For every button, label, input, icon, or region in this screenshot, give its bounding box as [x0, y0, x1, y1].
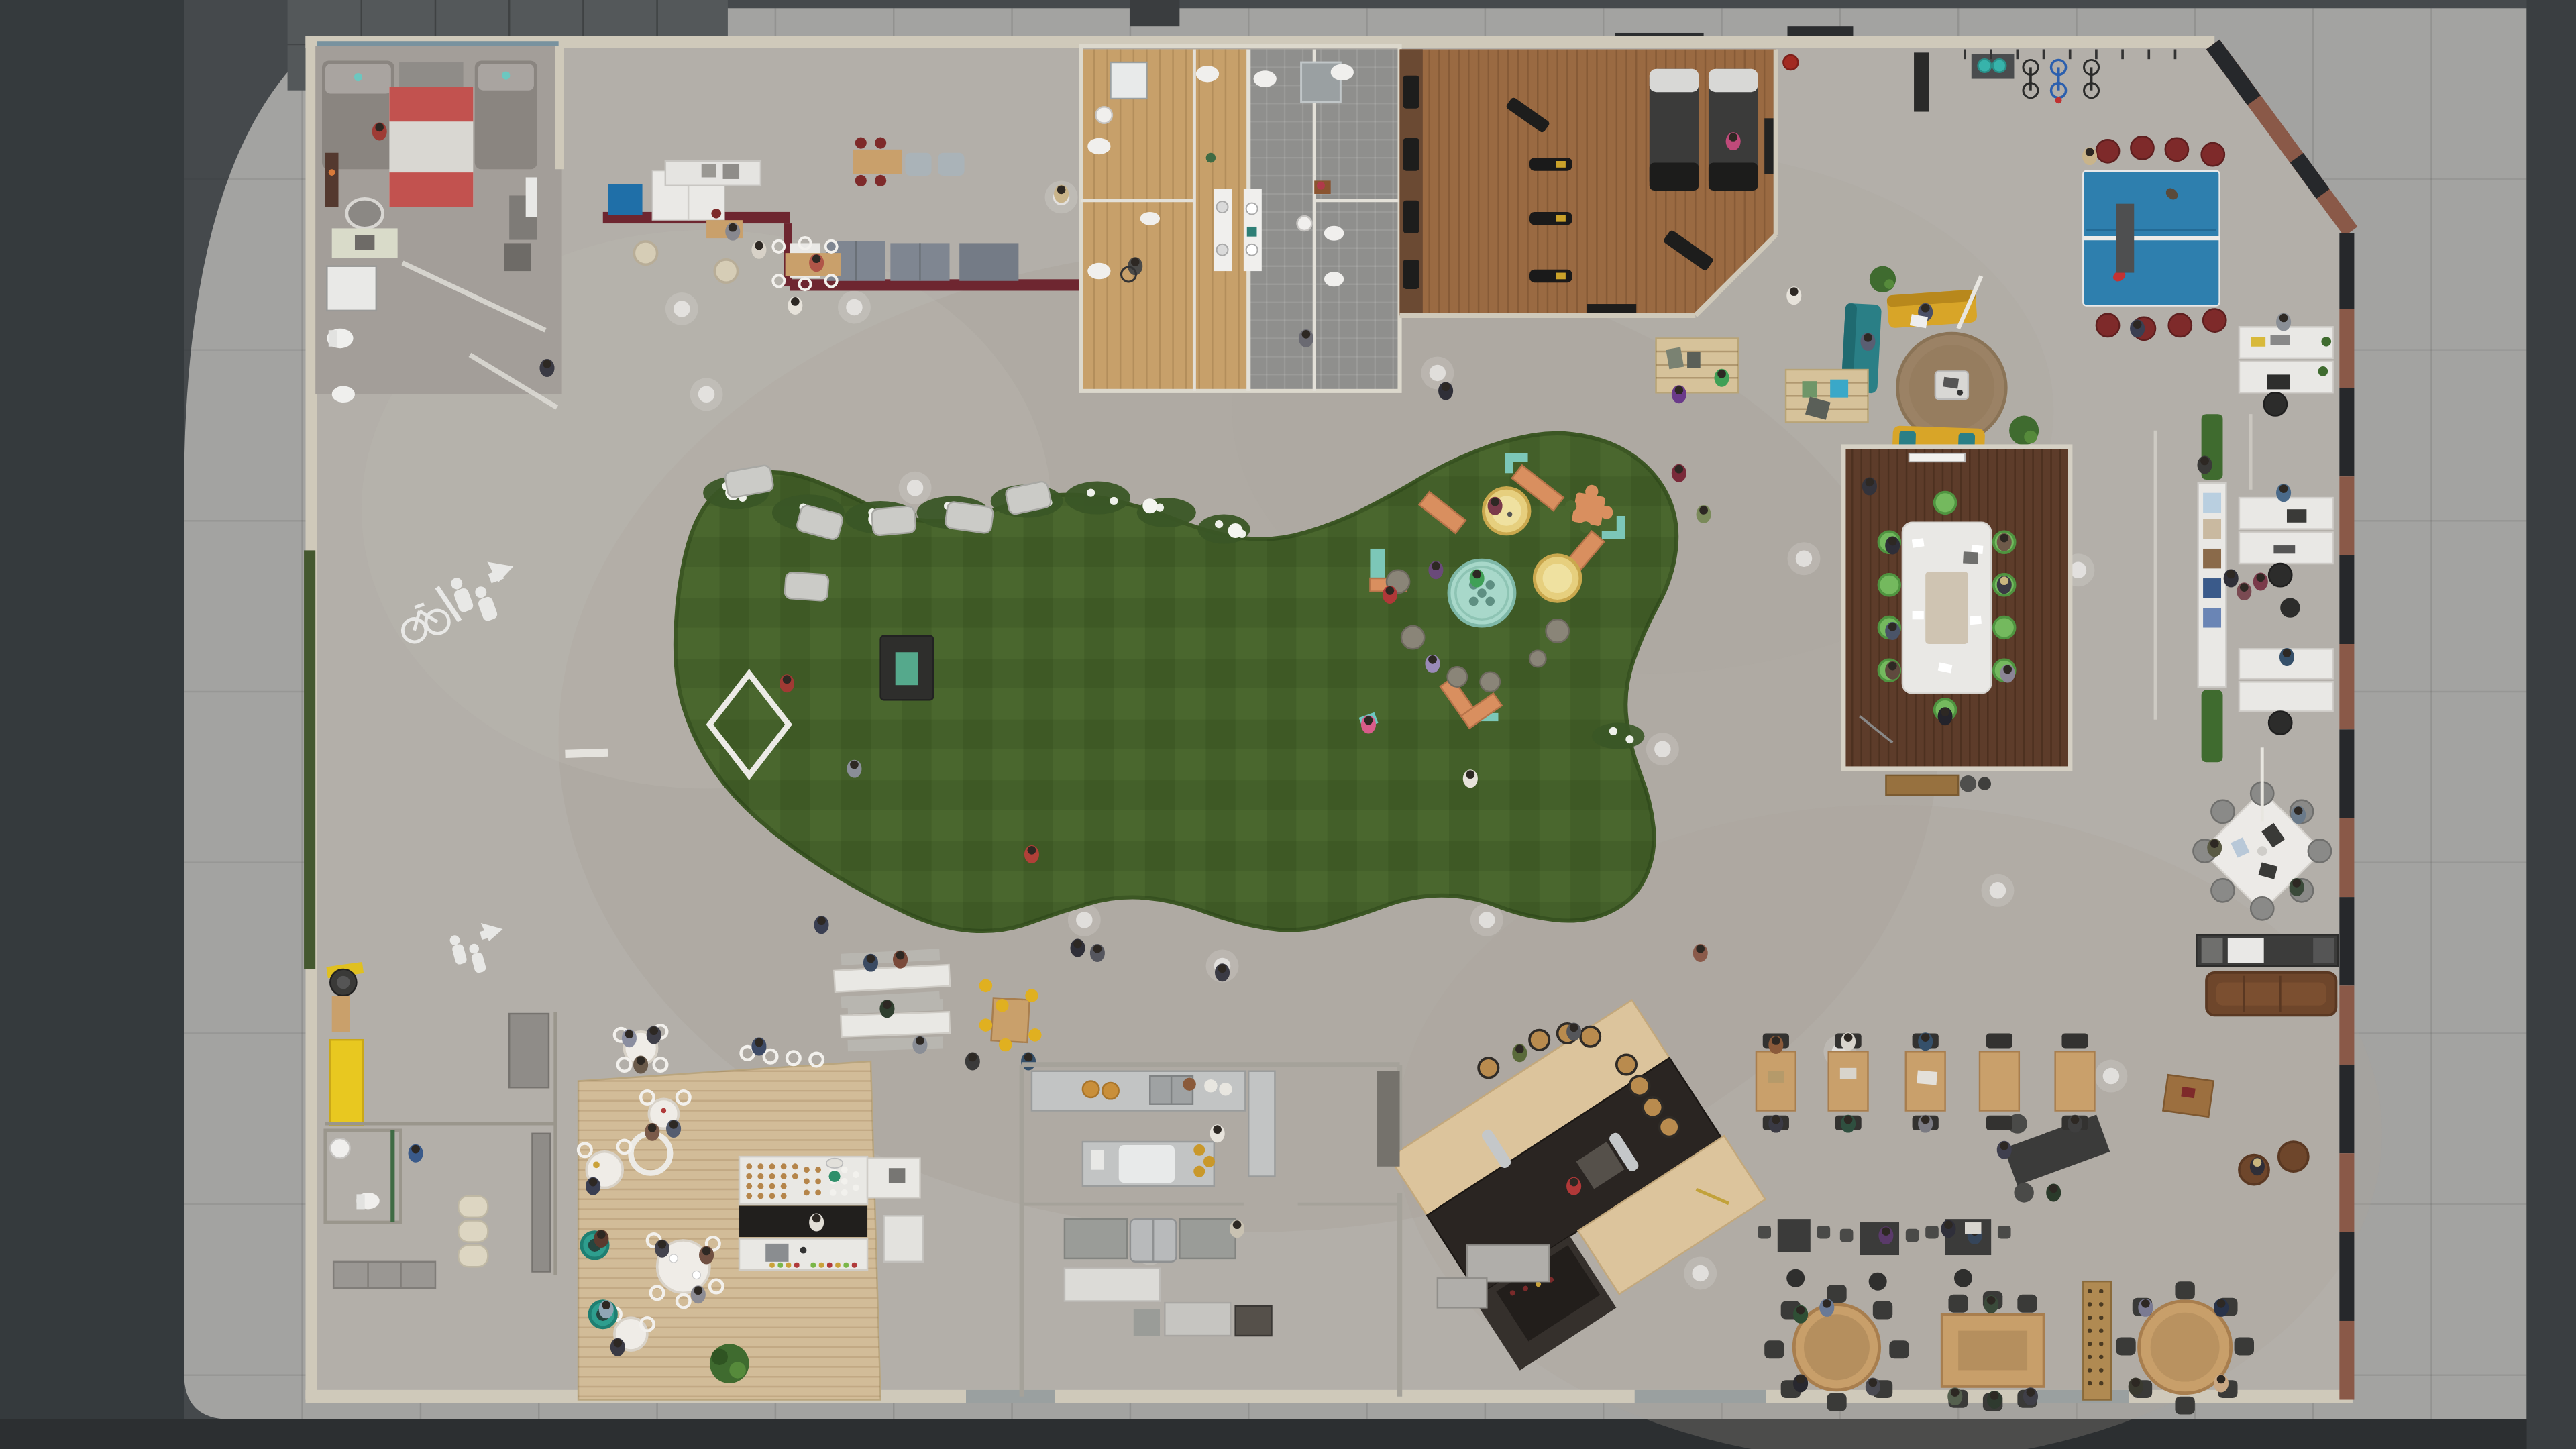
potted-tree-hl	[729, 1362, 745, 1378]
person-at-desk	[725, 223, 740, 241]
cafe-guest	[655, 1240, 669, 1258]
person-seated	[809, 254, 824, 272]
mesh-chair	[2175, 1397, 2194, 1415]
person-at-diamond-table	[2290, 878, 2304, 896]
cafe-guest	[645, 1123, 659, 1141]
helmet-teal	[1993, 59, 2006, 72]
diner-round-table	[2214, 1299, 2229, 1317]
person-walking-floor	[1090, 944, 1105, 962]
cube-chair-gray	[2014, 1183, 2033, 1202]
cafe-chair-dark	[1758, 1226, 1771, 1239]
bar-stool-wood	[1643, 1097, 1662, 1117]
cafe-guest	[610, 1338, 625, 1356]
mesh-chair	[1948, 1295, 1968, 1313]
printer	[2228, 938, 2264, 963]
playground-teal-L	[1505, 453, 1513, 473]
stool-darkred	[2131, 136, 2153, 159]
office-chair	[2269, 563, 2292, 586]
person-at-table	[863, 954, 878, 972]
meeting-chair-green	[1994, 617, 2015, 639]
person-at-table	[893, 951, 908, 969]
cafe-guest	[633, 1055, 648, 1073]
treadmill-1	[1650, 69, 1699, 191]
diner	[1768, 1036, 1783, 1054]
maroon-chair	[875, 175, 886, 186]
person-seated	[2046, 1183, 2061, 1201]
plate	[1219, 1083, 1232, 1096]
potted-tree-dk	[711, 1349, 727, 1365]
white-bench	[565, 749, 608, 758]
kitchen-counter-3	[1179, 1219, 1235, 1258]
kitchen-dark-sink	[1236, 1306, 1272, 1336]
fireplace-flame	[329, 169, 335, 176]
meeting-attendee	[1885, 537, 1900, 555]
stool-darkred	[2096, 140, 2119, 162]
changing-table-pad	[355, 235, 374, 250]
desk-white	[2239, 682, 2333, 711]
meeting-attendee	[1997, 576, 2012, 594]
sink-oval	[1140, 212, 1160, 225]
maroon-chair	[855, 137, 867, 148]
person-standing-meeting	[1862, 477, 1877, 495]
person-walking	[539, 359, 554, 377]
teal-stool	[1247, 227, 1257, 237]
bar-stool-wood	[1529, 1030, 1549, 1050]
person-woven-chair	[594, 1230, 608, 1248]
dining-table-wood	[2055, 1051, 2095, 1110]
r	[1556, 215, 1566, 222]
cream-cylinder-shelf	[458, 1221, 488, 1242]
r	[1556, 273, 1566, 280]
mobile-toy-teal	[502, 72, 510, 80]
diner	[1841, 1115, 1856, 1133]
lawn-bench	[871, 506, 916, 536]
diner	[2068, 1115, 2082, 1133]
tablet-gray	[1963, 551, 1978, 563]
food-tray	[1768, 1071, 1784, 1083]
toilet	[1087, 138, 1110, 154]
person-walking-floor	[1299, 329, 1313, 347]
r	[1830, 380, 1848, 398]
right-wall-seg	[2339, 897, 2354, 985]
toilet	[1254, 70, 1277, 87]
exercise-bike	[1529, 158, 1572, 171]
person-at-desk	[2276, 484, 2291, 502]
stone-sphere	[1529, 651, 1546, 667]
person-playground	[1383, 586, 1397, 604]
stool-darkred	[2203, 309, 2226, 331]
food-tray	[1840, 1068, 1856, 1079]
cafe-guest	[586, 1177, 600, 1195]
stone-sphere	[1401, 626, 1424, 649]
r	[945, 501, 994, 533]
fireplace	[325, 153, 339, 207]
kiosk-wood-box	[332, 996, 350, 1032]
person-walking-floor	[814, 916, 828, 934]
whiteboard	[1909, 453, 1965, 462]
office-chair	[2264, 392, 2287, 415]
right-wall-seg	[2339, 555, 2354, 644]
kiosk-grill-center	[337, 976, 350, 989]
cafe-table-dark	[1778, 1219, 1811, 1252]
weight-bench	[1403, 260, 1419, 289]
person-on-stool	[2082, 147, 2097, 165]
person-at-table	[912, 1036, 927, 1054]
person-walking-floor	[1071, 939, 1085, 957]
person-at-cafe-table	[1941, 1220, 1955, 1238]
person-near-wall	[409, 1144, 423, 1163]
bar-stool-wood	[1617, 1055, 1636, 1074]
diner	[1987, 1391, 2002, 1409]
stool-dark	[1869, 1273, 1887, 1291]
person-near-rack	[2224, 570, 2239, 588]
conference-table-runner	[1925, 572, 1968, 644]
person-playground	[1428, 561, 1443, 579]
stone-sphere	[1448, 667, 1467, 686]
plant-pot-green	[1206, 153, 1216, 163]
red-box-on-table	[2181, 1087, 2195, 1098]
bush	[1065, 482, 1130, 515]
diner-round-table	[1793, 1375, 1808, 1393]
notebook-yellow	[2251, 337, 2265, 347]
magazine-cover	[2203, 549, 2221, 568]
yellow-pouf-dot	[1507, 512, 1512, 517]
paper	[1913, 611, 1924, 619]
dining-table-wood	[1980, 1051, 2019, 1110]
mesh-chair	[2175, 1281, 2194, 1299]
mesh-chair	[1873, 1301, 1892, 1320]
bar-stool-wood	[1580, 1027, 1600, 1046]
suite-shower	[327, 266, 376, 311]
person-near-tables	[965, 1053, 980, 1071]
person-on-button-pouf	[1470, 570, 1485, 588]
maroon-chair	[855, 175, 867, 186]
person-on-teal-sofa	[1860, 333, 1875, 351]
r	[1529, 212, 1572, 225]
hedge-left-wall	[304, 550, 315, 969]
diner	[1768, 1115, 1783, 1133]
c	[2055, 97, 2062, 103]
r	[871, 506, 916, 536]
person-on-stool	[2130, 319, 2145, 337]
dining-chair	[1986, 1116, 2012, 1130]
diner	[1918, 1115, 1933, 1133]
diner-round-table	[2129, 1377, 2143, 1395]
gray-wall-block	[1438, 1278, 1487, 1307]
r	[1529, 158, 1572, 171]
diner-round-table	[1793, 1305, 1808, 1324]
r	[1572, 492, 1606, 527]
meeting-attendee	[2000, 665, 2015, 683]
bartender	[1566, 1177, 1581, 1195]
r	[1529, 270, 1572, 283]
cream-cylinder-shelf	[458, 1245, 488, 1267]
person-walking-center	[1786, 286, 1801, 305]
diner-round-table	[2214, 1375, 2229, 1393]
servery-bar-dark	[739, 1206, 867, 1238]
wood-console-outside	[1886, 775, 1958, 795]
sink-round	[1095, 107, 1112, 123]
diner-round-table	[1866, 1377, 1880, 1395]
stool-darkred	[2202, 143, 2224, 166]
suite-cabinet	[504, 243, 531, 271]
kitchen-small-unit	[1134, 1309, 1160, 1336]
matcha-bowl	[829, 1171, 841, 1182]
diner	[1984, 1295, 1998, 1313]
plate	[1204, 1079, 1218, 1093]
sink-round	[1297, 216, 1311, 231]
bar-stool-wood	[1479, 1058, 1498, 1077]
locker-blue	[608, 184, 642, 215]
plant-lounge	[1870, 266, 1896, 292]
wine-rack-tall	[2083, 1281, 2111, 1399]
dining-chair	[1986, 1033, 2012, 1048]
meeting-attendee	[1997, 533, 2012, 551]
chef	[1230, 1220, 1244, 1238]
desk-plant	[2321, 337, 2331, 347]
silver-lounge-1	[905, 153, 931, 176]
round-table-texture	[1804, 1314, 1870, 1380]
laptop-white	[1917, 1070, 1937, 1085]
treadmill-2	[1709, 69, 1758, 191]
right-wall-seg	[2339, 818, 2354, 898]
cafe-chair-dark	[1817, 1226, 1831, 1239]
r	[784, 572, 828, 602]
magazine-cover	[2203, 608, 2221, 627]
keyboard	[2273, 545, 2295, 553]
pouf-cream-1	[634, 241, 657, 264]
person-on-platform	[1715, 369, 1729, 387]
table-item-gold	[593, 1161, 600, 1168]
person-at-table	[879, 1000, 894, 1018]
toilet	[1331, 64, 1354, 80]
person-at-cafe-table	[1878, 1226, 1893, 1244]
round-table-texture	[2151, 1313, 2220, 1382]
person-lying-lawn	[1463, 769, 1478, 788]
person-at-desk	[2279, 648, 2294, 666]
serving-tray	[826, 1159, 843, 1169]
cafe-chair-dark	[1925, 1226, 1939, 1239]
person-woven-chair	[599, 1300, 614, 1318]
right-wall-seg	[2339, 1232, 2354, 1321]
cream-cylinder-shelf	[458, 1196, 488, 1218]
helmet-teal	[1978, 59, 1992, 72]
desk-white	[2239, 498, 2333, 529]
vanity-sink	[1246, 203, 1258, 214]
plate	[692, 1271, 700, 1279]
right-wall-seg	[2339, 476, 2354, 555]
pouf-cream-2	[714, 260, 737, 282]
kitchen-counter-right	[1248, 1071, 1275, 1177]
person-on-yellow-pouf	[1488, 497, 1503, 515]
person-at-lockers	[751, 241, 766, 259]
shower-tray	[1111, 62, 1147, 99]
island-hob	[889, 1168, 905, 1183]
cafe-chair-dark	[1998, 1226, 2011, 1239]
hedge-box-bottom	[2202, 690, 2223, 763]
office-chair	[2280, 598, 2300, 617]
mesh-chair	[1764, 1340, 1784, 1358]
chef	[1210, 1124, 1225, 1142]
kiosk-yellow-counter	[330, 1040, 363, 1125]
toilet	[1324, 272, 1344, 286]
suite-wall-right	[555, 46, 563, 170]
cafe-chair-dark	[1906, 1229, 1919, 1242]
r	[1650, 69, 1699, 92]
person-walking-floor	[1054, 185, 1069, 203]
gray-cabinet-tall	[509, 1014, 549, 1087]
right-wall-seg	[2339, 388, 2354, 476]
r	[1650, 162, 1699, 191]
paper	[1970, 616, 1982, 625]
flower-red	[1317, 182, 1325, 190]
bush	[1592, 723, 1644, 749]
weight-plate-red	[1783, 55, 1798, 70]
mesh-chair	[2116, 1337, 2135, 1355]
person-seated	[1997, 1141, 2012, 1159]
laptop-dark	[2267, 374, 2290, 389]
toilet	[1324, 226, 1344, 241]
console-box-1	[702, 164, 716, 178]
person-sitting-lawn	[847, 760, 861, 778]
dining-chair	[2061, 1033, 2088, 1048]
wc-sink	[330, 1138, 350, 1158]
suite-printer	[526, 177, 537, 217]
pullup-rack	[1914, 52, 1929, 111]
pouf-chair-gray	[2251, 897, 2273, 920]
keyboard	[2270, 335, 2290, 345]
right-wall-seg	[2339, 985, 2354, 1065]
person-reading-lawn	[1425, 655, 1440, 673]
suite-toilet-2	[332, 386, 355, 402]
person-at-desk	[2276, 313, 2291, 331]
silver-lounge-2	[938, 153, 964, 176]
outer-left-band	[0, 0, 184, 1449]
floor-plan-svg	[0, 0, 2576, 1449]
meeting-chair-green	[1935, 492, 1956, 513]
vanity-sink	[1216, 201, 1228, 213]
pouf-chair-gray	[2211, 879, 2234, 902]
bottom-dark-band	[0, 1419, 2576, 1449]
cafe-guest	[691, 1285, 706, 1303]
office-chair	[2269, 711, 2292, 734]
maroon-chair	[875, 137, 886, 148]
marble-slab-outdoor-3	[1130, 0, 1179, 26]
meeting-attendee	[1938, 707, 1953, 725]
mesh-chair	[2017, 1295, 2037, 1313]
r	[1556, 161, 1566, 168]
diner	[1918, 1032, 1933, 1051]
exercise-bike	[1529, 270, 1572, 283]
salt-jars	[1091, 1150, 1104, 1169]
person-sitting-rug	[372, 122, 387, 140]
locker-column	[532, 1134, 550, 1272]
planter-pot	[1978, 777, 1992, 790]
weight-bench	[1403, 76, 1419, 109]
r	[1687, 352, 1701, 368]
bar-stool-wood	[1659, 1117, 1678, 1136]
toilet	[1196, 66, 1219, 82]
mesh-chair	[1889, 1340, 1909, 1358]
wc-toilet-tank	[356, 1194, 364, 1209]
stool-darkred	[2169, 314, 2192, 337]
person-in-armchair	[2250, 1157, 2265, 1175]
person-pavement	[1697, 505, 1711, 523]
credenza-shelf	[2202, 938, 2223, 963]
suite-shelf	[399, 62, 464, 91]
meeting-attendee	[1885, 622, 1900, 640]
kitchen-cabinets-white	[1065, 1269, 1160, 1301]
chesterfield-seat	[2216, 982, 2326, 1005]
maroon-chair	[711, 209, 721, 219]
pizza	[1102, 1083, 1118, 1099]
right-wall-seg	[2339, 729, 2354, 818]
mobile-toy-teal	[354, 73, 362, 81]
person-at-diamond-table	[2291, 806, 2306, 824]
cafe-guest	[647, 1026, 661, 1044]
person-at-diamond-table	[2207, 839, 2222, 857]
plate	[669, 1254, 678, 1263]
magazine-cover	[2203, 578, 2221, 598]
lawn-bench	[945, 501, 994, 533]
stone-sphere	[1546, 619, 1568, 642]
right-wall-seg	[2339, 233, 2354, 309]
paper	[1912, 538, 1925, 548]
suite-toilet-tank	[329, 330, 337, 346]
person-seated	[2253, 572, 2268, 590]
person-walking	[788, 297, 802, 315]
laptop-white	[1965, 1222, 1981, 1234]
person-walking-floor	[1693, 944, 1708, 962]
pouf-chair-gray	[2211, 800, 2234, 823]
storage-counters	[333, 1262, 435, 1288]
striped-rug-red-top	[389, 87, 473, 121]
exercise-bike	[1529, 212, 1572, 225]
desk-plant	[2318, 366, 2328, 376]
white-table-long	[841, 1012, 950, 1036]
cafe-chair-dark	[1840, 1229, 1854, 1242]
person-pavement	[1672, 464, 1686, 482]
diner-round-table	[1819, 1299, 1834, 1317]
barista	[809, 1214, 824, 1232]
kitchen-gray-block	[1377, 1071, 1399, 1167]
kid-on-lawn	[1361, 716, 1376, 734]
dining-table-wood	[1829, 1051, 1868, 1110]
right-wall-seg	[2339, 1153, 2354, 1232]
cup	[1957, 390, 1963, 396]
pouf-chair-gray	[2308, 839, 2331, 862]
stool-dark	[1954, 1269, 1972, 1287]
right-wall-seg	[2339, 309, 2354, 388]
right-wall-seg	[2339, 644, 2354, 729]
locker-gray-3	[959, 243, 1018, 280]
person-on-lawn	[780, 674, 794, 692]
mesh-chair	[2235, 1337, 2254, 1355]
picnic-bench-2	[1786, 370, 1868, 422]
diner-round-table	[2138, 1299, 2153, 1317]
credenza-shelf	[2313, 938, 2334, 963]
diner	[2023, 1387, 2038, 1405]
espresso-machine	[765, 1244, 788, 1262]
person-on-treadmill	[1726, 132, 1741, 150]
cafe-guest	[666, 1120, 681, 1138]
coffee-grinder	[800, 1247, 807, 1254]
meeting-chair-green	[1878, 574, 1900, 596]
r	[1709, 69, 1758, 92]
person-walking-floor	[1215, 963, 1230, 981]
console-box-2	[723, 164, 739, 179]
cafe-guest	[699, 1246, 714, 1265]
